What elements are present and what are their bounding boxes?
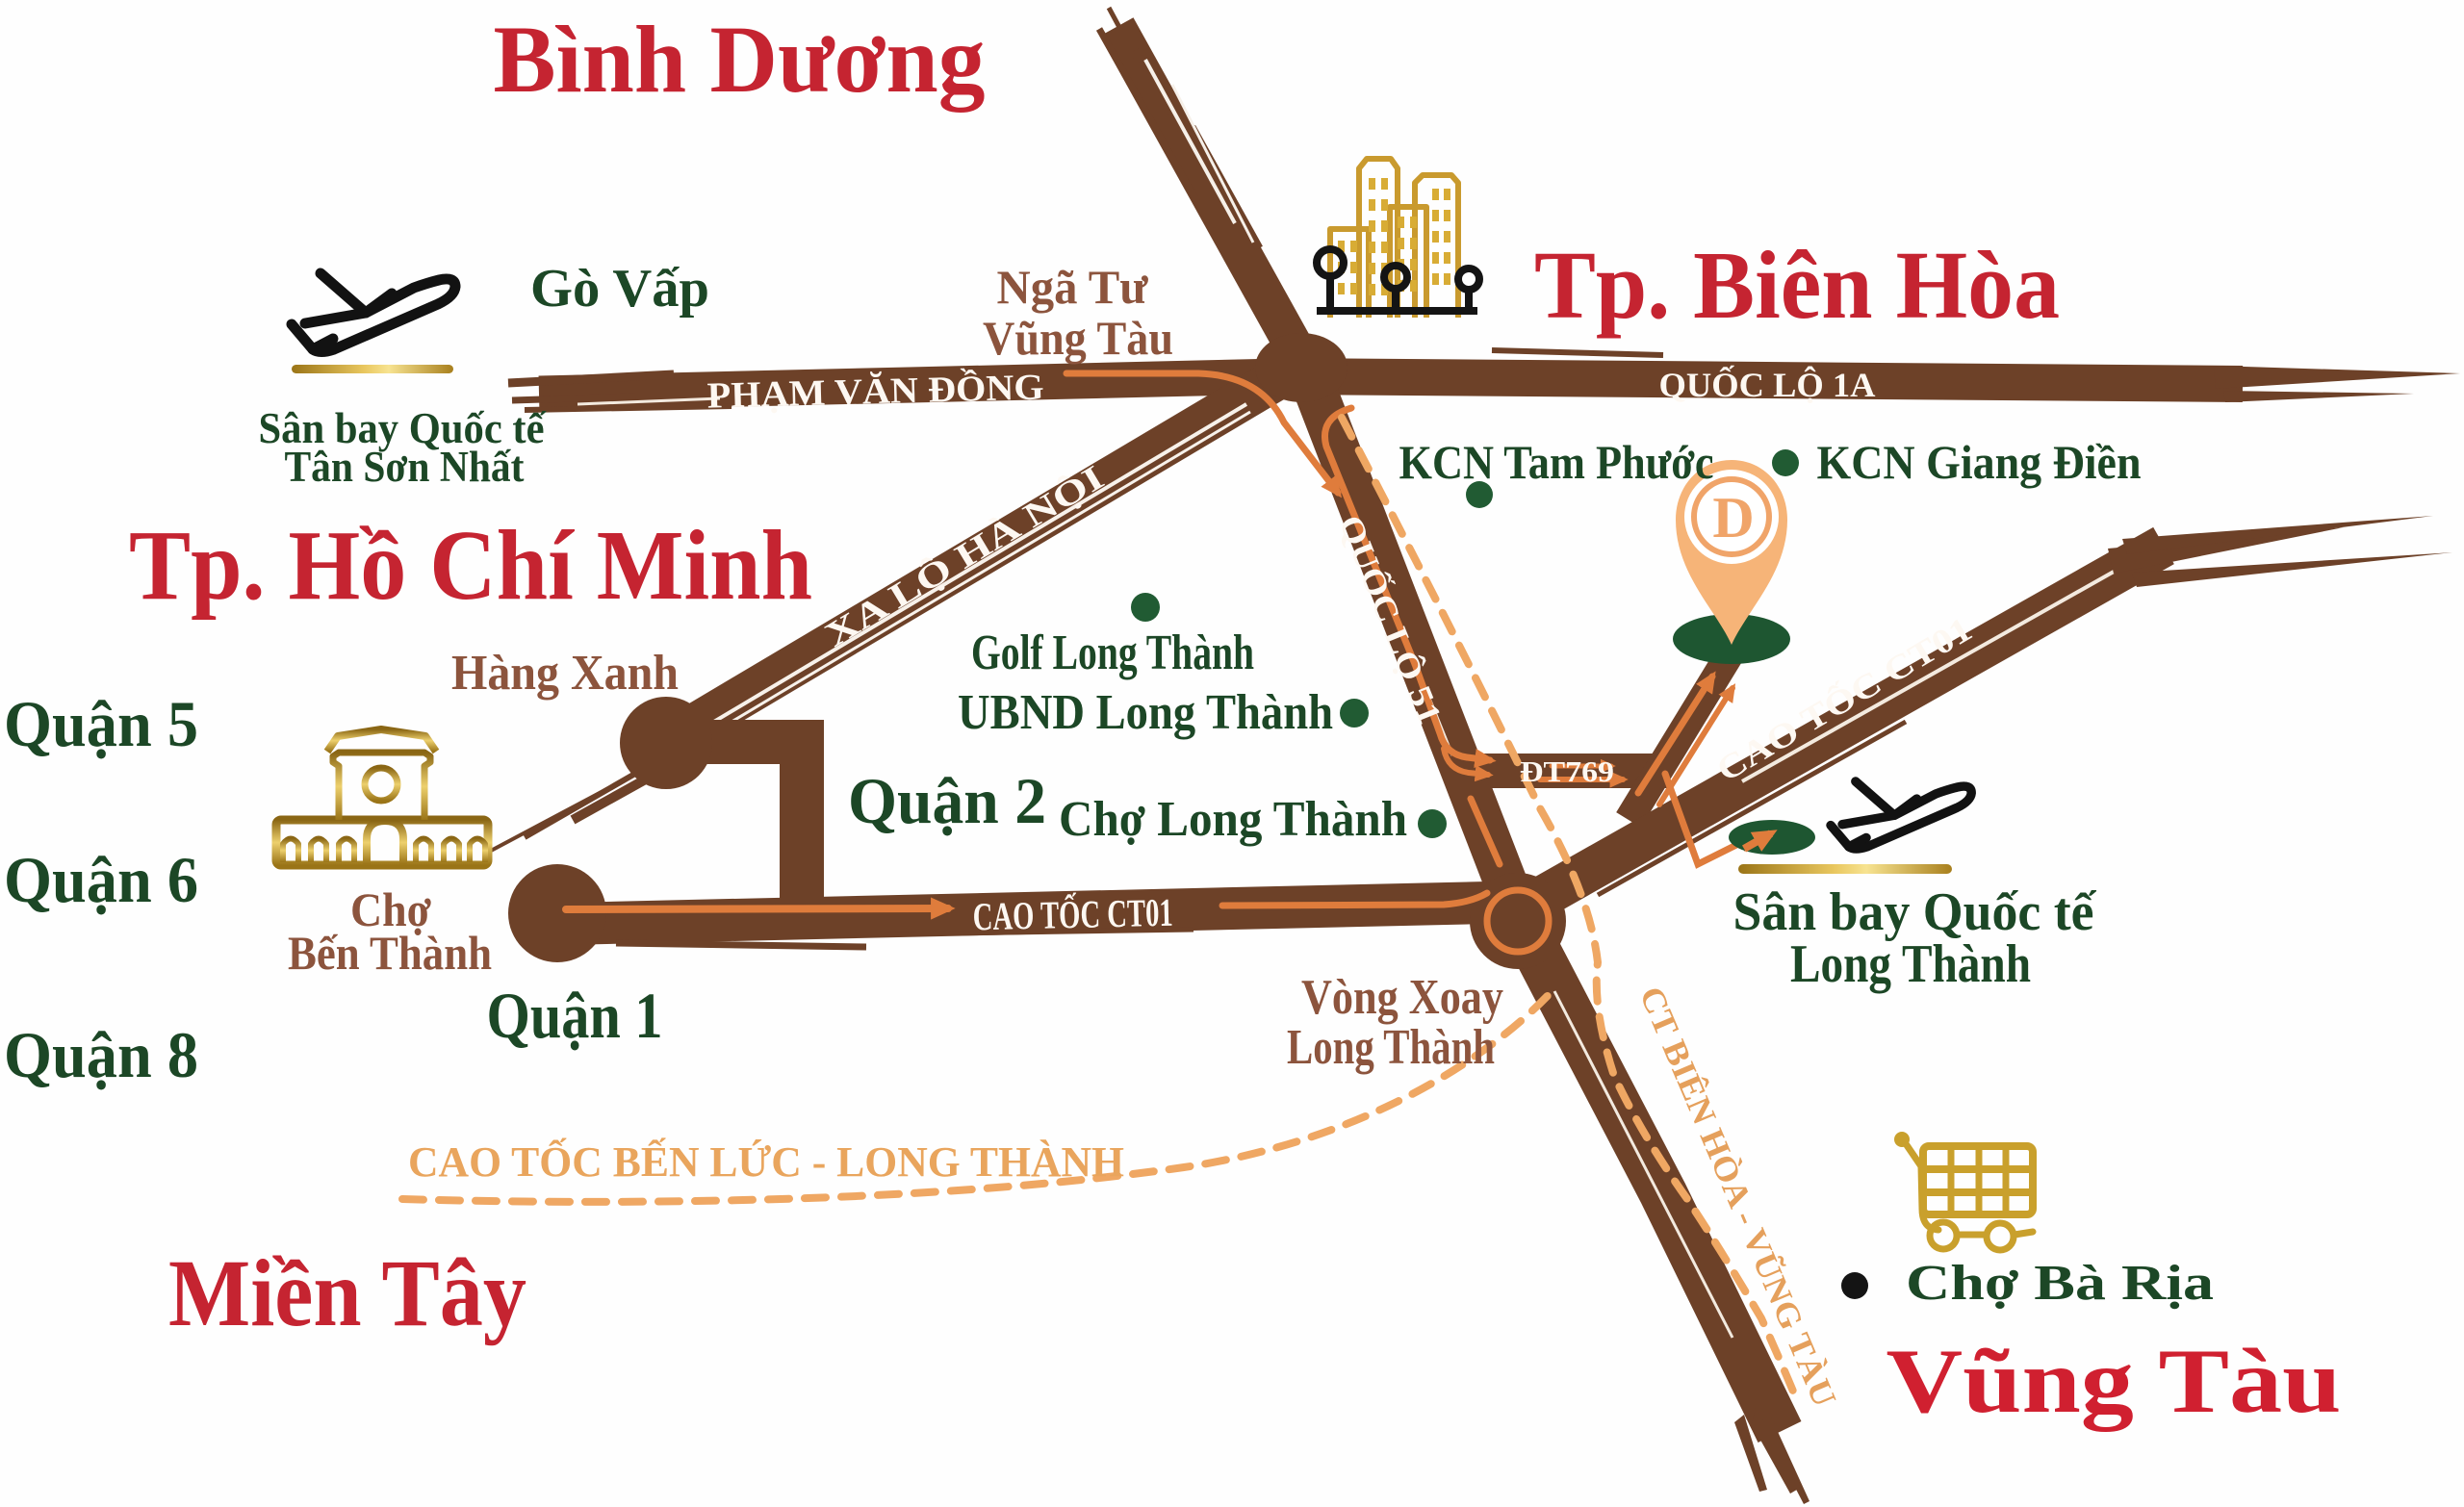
svg-text:CAO TỐC BẾN LỨC - LONG THÀNH: CAO TỐC BẾN LỨC - LONG THÀNH (408, 1137, 1124, 1186)
svg-text:Sân bay Quốc tế: Sân bay Quốc tế (1733, 882, 2097, 942)
svg-text:Vòng Xoay: Vòng Xoay (1301, 970, 1503, 1025)
svg-text:Bình Dương: Bình Dương (494, 6, 986, 113)
svg-text:Quận 6: Quận 6 (4, 843, 198, 916)
svg-text:Long Thành: Long Thành (1287, 1020, 1495, 1075)
svg-text:CAO TỐC CT01: CAO TỐC CT01 (972, 890, 1173, 939)
svg-text:QUỐC LỘ 1A: QUỐC LỘ 1A (1659, 365, 1876, 404)
svg-text:Quận 2: Quận 2 (848, 764, 1046, 837)
svg-text:KCN Tam Phước: KCN Tam Phước (1399, 435, 1714, 489)
svg-text:Chợ Bà Rịa: Chợ Bà Rịa (1906, 1256, 2214, 1311)
svg-text:Hàng Xanh: Hàng Xanh (451, 646, 679, 701)
svg-text:Chợ Long Thành: Chợ Long Thành (1059, 792, 1407, 847)
svg-text:Vũng Tàu: Vũng Tàu (1886, 1330, 2342, 1432)
svg-text:Quận 1: Quận 1 (487, 979, 663, 1052)
svg-text:Ngã Tư: Ngã Tư (997, 260, 1149, 314)
svg-text:Miền Tây: Miền Tây (168, 1239, 526, 1346)
svg-text:KCN Giang Điền: KCN Giang Điền (1817, 435, 2142, 489)
svg-text:Tp. Biên Hòa: Tp. Biên Hòa (1534, 231, 2060, 339)
svg-text:Gò Vấp: Gò Vấp (530, 259, 709, 319)
svg-text:ĐT769: ĐT769 (1520, 754, 1614, 788)
svg-text:Tp. Hồ Chí Minh: Tp. Hồ Chí Minh (129, 510, 812, 621)
svg-text:Long Thành: Long Thành (1790, 934, 2031, 994)
svg-text:UBND Long Thành: UBND Long Thành (958, 685, 1333, 740)
svg-text:Quận 8: Quận 8 (4, 1018, 198, 1091)
svg-text:Quận 5: Quận 5 (4, 687, 198, 760)
svg-text:Vũng Tàu: Vũng Tàu (983, 311, 1173, 365)
svg-text:Golf Long Thành: Golf Long Thành (971, 626, 1254, 680)
svg-text:Tân Sơn Nhất: Tân Sơn Nhất (285, 443, 525, 491)
svg-text:D: D (1712, 486, 1754, 549)
svg-text:Bến Thành: Bến Thành (288, 926, 492, 980)
